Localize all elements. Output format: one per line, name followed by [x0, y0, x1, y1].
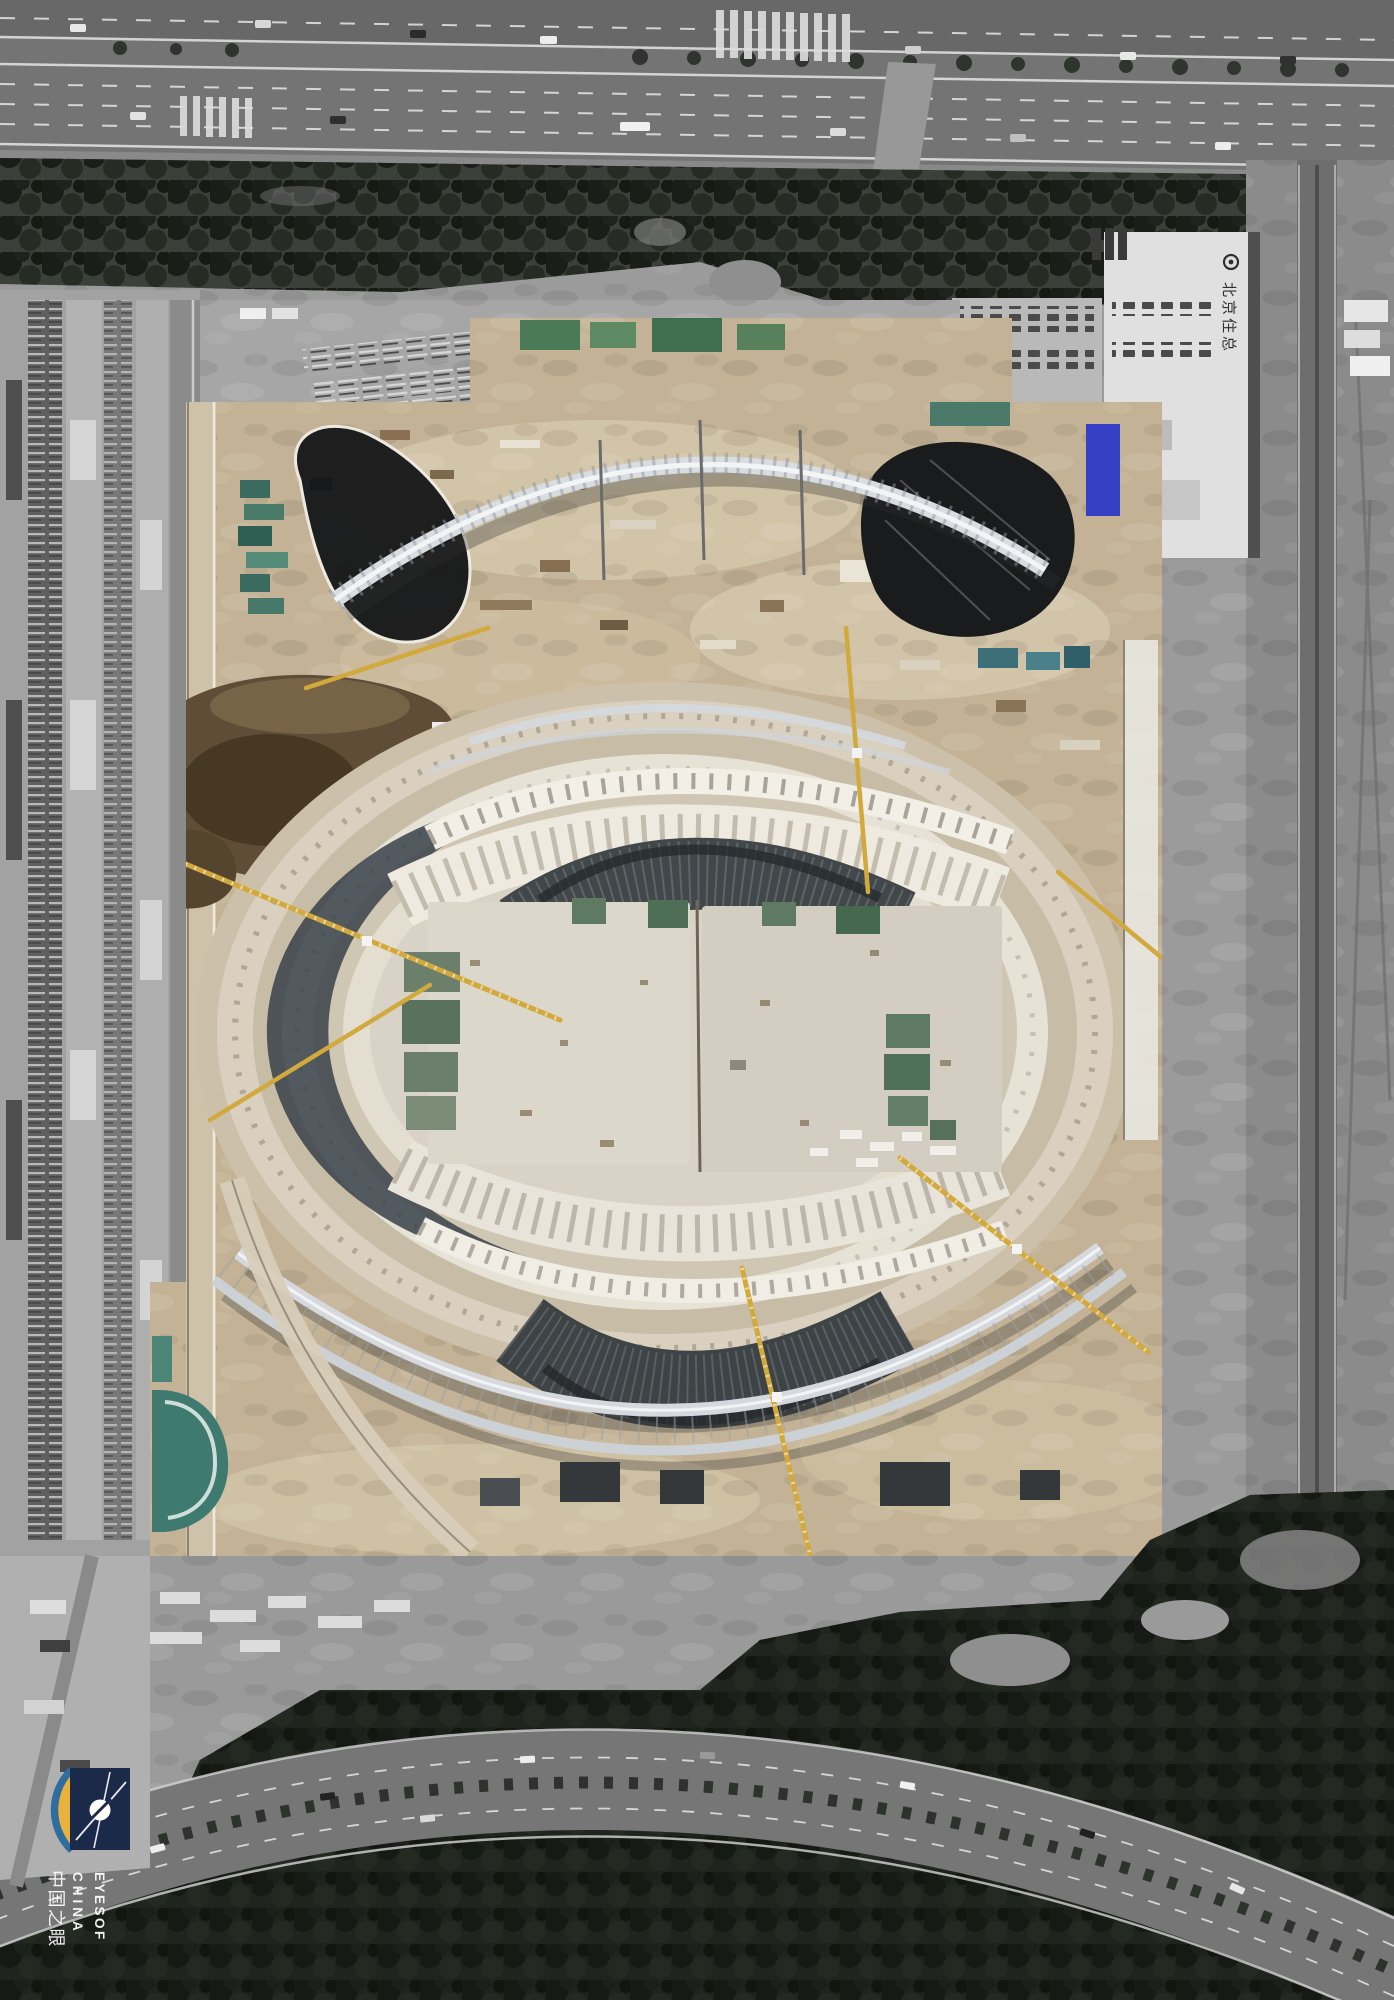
highway: [0, 0, 1394, 188]
watermark-logo: [55, 1768, 130, 1850]
aerial-photo: 北京住总: [0, 0, 1394, 2000]
construction-site: [150, 318, 1200, 1580]
aerial-photo-canvas: 北京住总: [0, 0, 1394, 2000]
east-walkway: [1124, 640, 1158, 1140]
watermark-text-en-2: CHINA: [70, 1872, 85, 1935]
sign-text: 北京住总: [1220, 282, 1237, 354]
watermark-text-cn: 中国之眼: [46, 1870, 66, 1948]
blue-tarp: [1086, 424, 1120, 516]
watermark-text-en-1: EYESOF: [92, 1872, 107, 1942]
right-field: [1246, 160, 1394, 1610]
field-slab-west: [428, 902, 690, 1164]
